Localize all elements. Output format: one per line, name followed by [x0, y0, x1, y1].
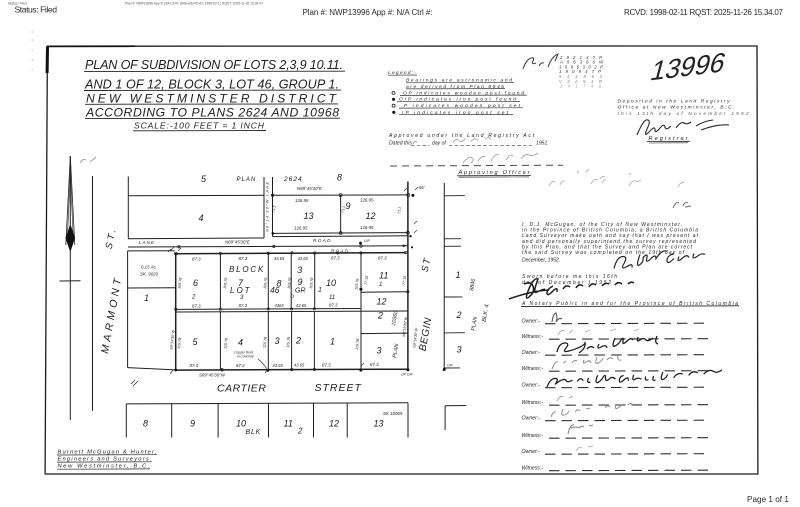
svg-text:43.65: 43.65: [296, 303, 307, 308]
svg-text:Dated this: Dated this: [389, 141, 412, 147]
svg-text:LOT: LOT: [230, 286, 252, 295]
svg-text:43.65: 43.65: [274, 256, 285, 261]
svg-text:87.3: 87.3: [370, 362, 379, 367]
svg-text:3: 3: [457, 345, 462, 355]
svg-text:SCALE:-100 FEET = 1 INCH: SCALE:-100 FEET = 1 INCH: [134, 121, 265, 131]
svg-text:STREET: STREET: [315, 382, 363, 394]
svg-text:December, 1952.: December, 1952.: [522, 258, 560, 264]
svg-text:126.95: 126.95: [294, 226, 308, 231]
svg-text:87.3: 87.3: [236, 363, 245, 368]
svg-text:in Concrete: in Concrete: [237, 355, 254, 359]
svg-text:SK. 9020: SK. 9020: [140, 271, 159, 276]
svg-text:3: 3: [275, 336, 280, 346]
svg-text:NEW WESTMINSTER DISTRICT: NEW WESTMINSTER DISTRICT: [86, 91, 338, 105]
svg-text:87.3: 87.3: [192, 256, 201, 261]
svg-text:CARTIER: CARTIER: [217, 383, 266, 395]
svg-text:9: 9: [298, 277, 303, 287]
svg-text:Page 1 of 1: Page 1 of 1: [747, 495, 789, 504]
svg-text:3: 3: [297, 265, 303, 276]
svg-text:Witness:-: Witness:-: [522, 466, 544, 472]
svg-text:12: 12: [377, 297, 387, 307]
svg-text:126.95: 126.95: [295, 198, 309, 203]
svg-text:11: 11: [284, 419, 293, 429]
svg-text:2: 2: [377, 311, 383, 321]
svg-text:2: 2: [456, 310, 462, 320]
svg-text:0.15 Ac.: 0.15 Ac.: [141, 265, 157, 270]
svg-text:ACCORDING TO PLANS 2624 AND 10: ACCORDING TO PLANS 2624 AND 10968: [85, 105, 339, 119]
svg-text:12: 12: [329, 419, 339, 429]
svg-text:RCVD: 1998-02-11 RQST: 2025-11: RCVD: 1998-02-11 RQST: 2025-11-26 15.34.…: [624, 8, 784, 17]
svg-text:Plan #: NWP13996 App #: N/A Ct: Plan #: NWP13996 App #: N/A Ctrl #:: [303, 8, 433, 17]
svg-text:Owner:-: Owner:-: [522, 319, 541, 325]
svg-text:12: 12: [366, 211, 376, 221]
svg-text:SK 10069: SK 10069: [383, 411, 403, 416]
svg-text:43.65: 43.65: [298, 256, 309, 261]
svg-text:...: ...: [784, 499, 788, 505]
svg-text:9: 9: [346, 201, 351, 211]
svg-text:Plan #: NWP13996 App #: N/A Ct: Plan #: NWP13996 App #: N/A Ctrl #: (Alt…: [125, 2, 263, 6]
svg-text:Owner:-: Owner:-: [522, 350, 541, 356]
svg-text:3: 3: [377, 346, 382, 356]
svg-text:4: 4: [238, 338, 243, 348]
svg-text:PLAN OF SUBDIVISION OF LOTS 2,: PLAN OF SUBDIVISION OF LOTS 2,3,9 10.11.: [85, 58, 343, 72]
svg-text:13: 13: [304, 211, 314, 221]
svg-text:4365: 4365: [275, 303, 285, 308]
svg-text:1951.: 1951.: [536, 141, 549, 147]
svg-text:PLAN: PLAN: [237, 177, 257, 183]
svg-text:66': 66': [419, 185, 425, 190]
svg-text:87.3: 87.3: [378, 255, 387, 260]
svg-text:day of: day of: [432, 141, 446, 147]
svg-text:13: 13: [374, 419, 384, 429]
svg-text:10: 10: [236, 419, 246, 429]
svg-text:LANE: LANE: [139, 240, 155, 245]
svg-text:OIF: OIF: [447, 364, 454, 368]
svg-text:AND 1 OF 12, BLOCK 3, LOT 46,: AND 1 OF 12, BLOCK 3, LOT 46, GROUP 1.: [84, 77, 339, 91]
svg-text:OP OIF: OP OIF: [401, 373, 414, 377]
svg-text:1: 1: [456, 270, 461, 280]
svg-text:10: 10: [326, 278, 336, 288]
svg-text:87.3: 87.3: [190, 363, 199, 368]
svg-text:N89°45'30"E: N89°45'30"E: [225, 240, 250, 245]
svg-text:2624: 2624: [283, 176, 303, 183]
svg-text:Witness:-: Witness:-: [522, 366, 544, 372]
svg-text:Status: Filed: Status: Filed: [15, 5, 58, 15]
svg-text:87.3: 87.3: [239, 303, 248, 308]
svg-text:1: 1: [379, 282, 382, 288]
svg-text:OIF: OIF: [364, 239, 371, 243]
svg-text:8: 8: [143, 419, 148, 429]
svg-text:S89°45'30"W: S89°45'30"W: [199, 373, 226, 378]
svg-text:Owner:-: Owner:-: [522, 416, 541, 422]
svg-text:46: 46: [270, 285, 280, 295]
svg-text:N89°45'30"E: N89°45'30"E: [297, 186, 322, 191]
svg-text:87.3: 87.3: [322, 363, 331, 368]
svg-text:GR: GR: [295, 288, 306, 295]
svg-text:9: 9: [190, 419, 195, 429]
svg-text:4: 4: [199, 213, 204, 223]
svg-text:87.3: 87.3: [192, 303, 201, 308]
svg-text:Owner:-: Owner:-: [522, 383, 541, 389]
svg-text:BLK: BLK: [246, 429, 262, 436]
svg-text:87.3: 87.3: [329, 303, 338, 308]
svg-text:1: 1: [144, 293, 149, 303]
svg-text:Witness:-: Witness:-: [522, 400, 544, 406]
svg-text:ROAD: ROAD: [313, 238, 332, 243]
svg-text:87.3: 87.3: [331, 256, 340, 261]
svg-text:126.95: 126.95: [360, 225, 374, 230]
svg-text:1: 1: [318, 287, 322, 294]
svg-text:BLOCK: BLOCK: [229, 265, 265, 274]
svg-text:11: 11: [329, 295, 335, 301]
svg-text:2: 2: [297, 427, 303, 436]
svg-text:2: 2: [191, 295, 196, 301]
svg-text:43.65: 43.65: [294, 363, 305, 368]
svg-text:43.65: 43.65: [273, 363, 284, 368]
svg-text:8: 8: [337, 173, 342, 183]
svg-text:87.3: 87.3: [239, 256, 248, 261]
svg-text:N0°14'30"W LANE: N0°14'30"W LANE: [266, 182, 270, 232]
svg-text:Owner:-: Owner:-: [522, 449, 541, 455]
svg-text:6: 6: [193, 278, 198, 288]
svg-text:Witness:-: Witness:-: [522, 334, 544, 340]
svg-text:Witness:-: Witness:-: [522, 433, 544, 439]
svg-text:Office at New Westminster, B.C: Office at New Westminster, B.C.: [618, 105, 735, 111]
svg-text:11: 11: [379, 271, 388, 281]
svg-text:126.95: 126.95: [360, 198, 374, 203]
svg-text:1: 1: [330, 337, 335, 347]
svg-text:2: 2: [295, 336, 301, 346]
